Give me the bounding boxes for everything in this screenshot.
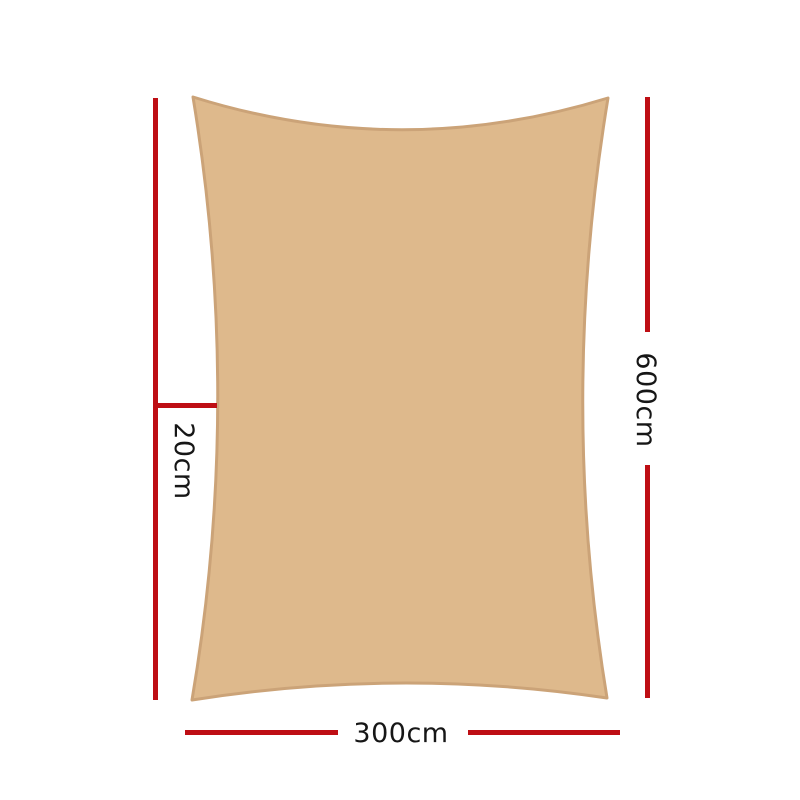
shade-sail-shape [192,97,608,700]
dimension-line-bottom-right [468,730,620,735]
dimension-line-right-upper [645,97,650,332]
dimension-label-300cm: 300cm [321,717,481,751]
dimension-line-left [153,98,158,700]
dimension-line-right-lower [645,465,650,698]
shade-sail-graphic [0,0,800,800]
dimension-label-600cm: 600cm [629,320,661,480]
dimension-line-bottom-left [185,730,338,735]
product-dimension-diagram: 20cm 600cm 300cm [0,0,800,800]
dimension-label-20cm: 20cm [167,391,199,531]
